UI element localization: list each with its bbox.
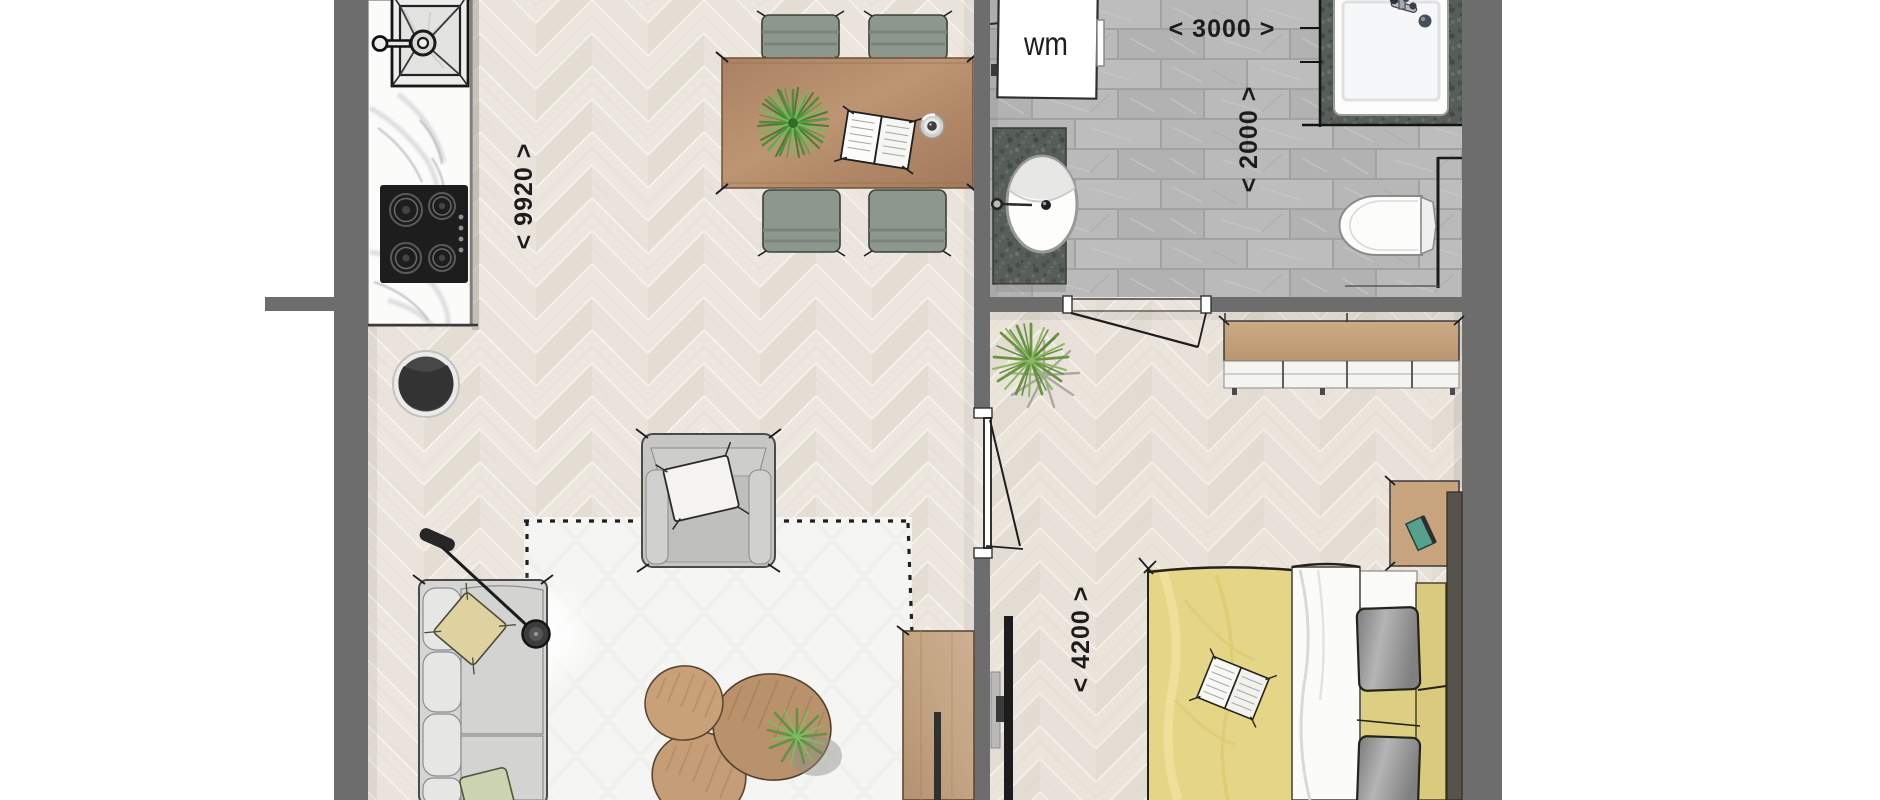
svg-text:< 4200 >: < 4200 >	[1067, 586, 1095, 693]
svg-text:< 3000 >: < 3000 >	[1169, 15, 1276, 43]
svg-text:< 9920 >: < 9920 >	[510, 143, 538, 250]
svg-text:wm: wm	[1023, 25, 1068, 62]
svg-text:< 2000 >: < 2000 >	[1235, 86, 1263, 193]
